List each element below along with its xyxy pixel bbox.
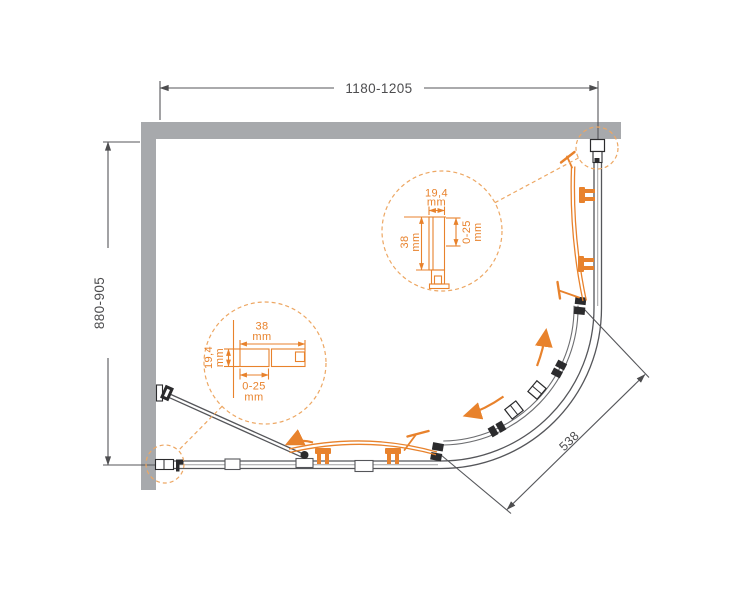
door-handle xyxy=(558,282,580,299)
detail-top-width-unit: mm xyxy=(427,197,446,209)
glass-clamp xyxy=(225,459,240,470)
panel-foot-roller xyxy=(296,451,313,468)
detail-bottom-width-unit: mm xyxy=(252,331,271,343)
door-roller-carriage xyxy=(579,187,595,203)
track-bracket xyxy=(505,401,523,419)
curved-rail-outer xyxy=(441,308,602,469)
slide-arrow-left xyxy=(288,441,314,444)
depth-dimension-label: 880-905 xyxy=(92,277,107,329)
detail-bottom-depth-unit: mm xyxy=(214,348,226,367)
top-wall xyxy=(141,122,621,139)
left-wall xyxy=(141,122,156,490)
wall-profile-bottom xyxy=(156,460,184,472)
slide-arrow-up xyxy=(537,331,546,366)
detail-bottom-adjust-unit: mm xyxy=(244,392,263,404)
glass-clamp xyxy=(355,461,373,472)
walls xyxy=(141,122,621,490)
callout-leader xyxy=(178,406,222,450)
slide-arrow-down xyxy=(466,397,504,416)
detail-top-depth-unit: mm xyxy=(410,232,422,251)
shower-enclosure-plan: 1180-1205 880-905 538 xyxy=(0,0,750,600)
pivot-panel xyxy=(157,385,314,468)
extension-line xyxy=(441,455,511,514)
detail-top-adjust-unit: mm xyxy=(472,222,484,241)
wall-hinge-plate xyxy=(157,385,163,401)
door-end-roller xyxy=(574,296,587,315)
track-bracket xyxy=(528,381,546,399)
door-roller-carriage xyxy=(578,256,594,272)
callout-leader xyxy=(495,158,579,203)
technical-drawing: 1180-1205 880-905 538 xyxy=(0,0,750,600)
door-top-bracket xyxy=(561,152,575,168)
frame-rail xyxy=(156,141,602,469)
sliding-door-right-open xyxy=(558,152,596,301)
wall-profile-top xyxy=(591,140,605,163)
slide-direction-arrows xyxy=(288,331,547,444)
chord-dimension-label: 538 xyxy=(556,428,582,453)
width-dimension-label: 1180-1205 xyxy=(345,81,412,96)
detail-callouts xyxy=(146,127,618,483)
